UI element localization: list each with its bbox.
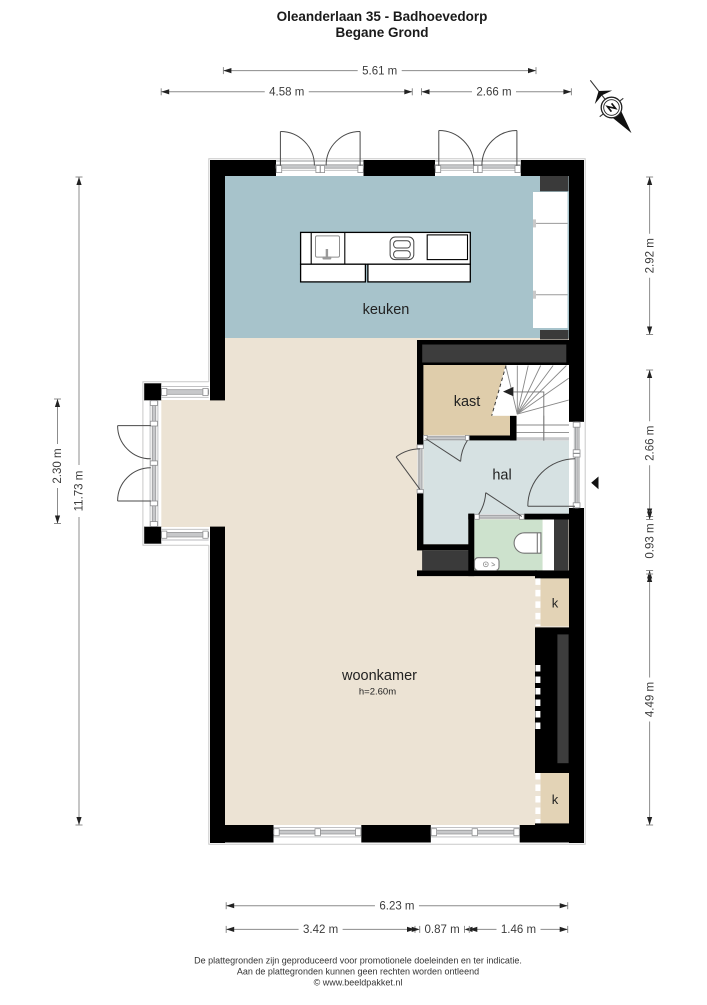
svg-text:4.49 m: 4.49 m: [644, 682, 656, 717]
svg-text:3.42 m: 3.42 m: [303, 924, 338, 936]
svg-text:4.58 m: 4.58 m: [269, 87, 304, 99]
svg-text:2.30 m: 2.30 m: [52, 448, 64, 483]
svg-text:k: k: [552, 792, 559, 807]
svg-text:Oleanderlaan 35 - Badhoevedorp: Oleanderlaan 35 - Badhoevedorp: [277, 9, 488, 24]
svg-text:2.66 m: 2.66 m: [476, 87, 511, 99]
svg-text:keuken: keuken: [363, 302, 410, 318]
svg-text:11.73 m: 11.73 m: [74, 471, 86, 512]
svg-text:h=2.60m: h=2.60m: [359, 687, 396, 698]
svg-text:hal: hal: [492, 468, 511, 484]
svg-text:© www.beeldpakket.nl: © www.beeldpakket.nl: [314, 978, 403, 988]
svg-text:5.61 m: 5.61 m: [362, 65, 397, 77]
svg-text:De plattegronden zijn geproduc: De plattegronden zijn geproduceerd voor …: [194, 956, 522, 966]
svg-text:kast: kast: [454, 394, 481, 410]
svg-text:6.23 m: 6.23 m: [379, 900, 414, 912]
svg-text:woonkamer: woonkamer: [341, 668, 417, 684]
svg-text:0.93 m: 0.93 m: [644, 523, 656, 558]
svg-text:1.46 m: 1.46 m: [501, 924, 536, 936]
svg-text:Aan de plattegronden kunnen ge: Aan de plattegronden kunnen geen rechten…: [237, 967, 479, 977]
svg-text:k: k: [552, 596, 559, 611]
svg-text:2.66 m: 2.66 m: [644, 426, 656, 461]
svg-text:Begane Grond: Begane Grond: [335, 25, 428, 40]
svg-text:2.92 m: 2.92 m: [644, 238, 656, 273]
svg-text:0.87 m: 0.87 m: [425, 924, 460, 936]
